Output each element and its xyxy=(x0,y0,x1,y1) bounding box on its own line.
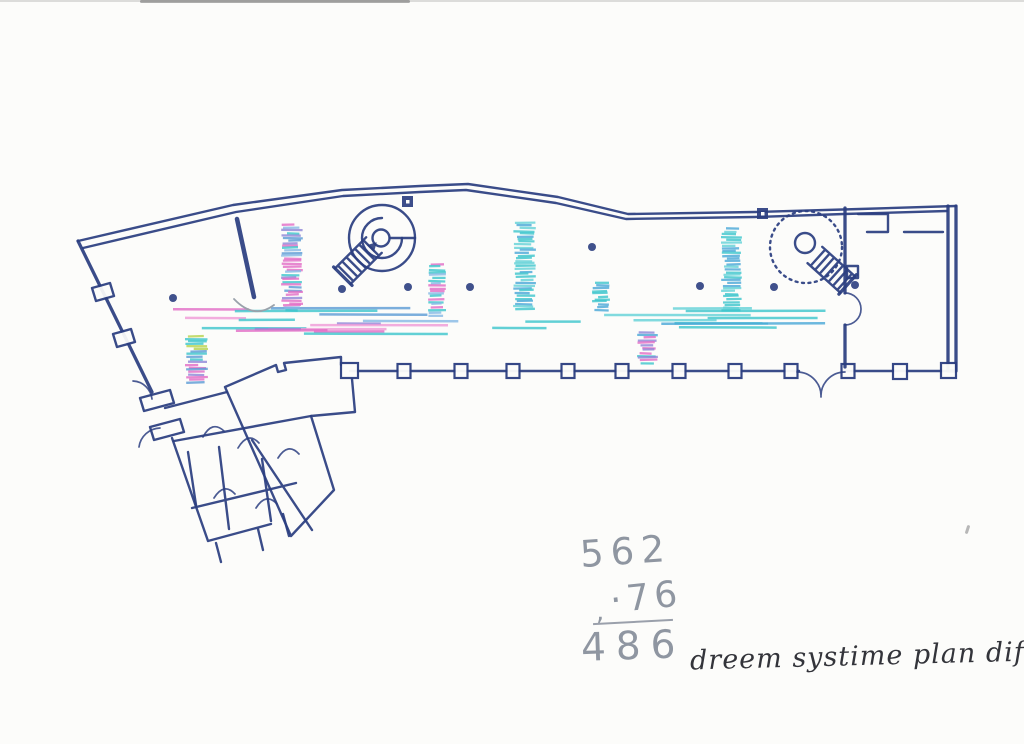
door-swing-arcs xyxy=(203,427,299,508)
lower-left-wing-walls xyxy=(133,357,355,562)
pencil-subtrahend-mark: , xyxy=(596,599,604,625)
stair-wall-markers xyxy=(402,196,768,219)
double-door-swing xyxy=(797,372,845,397)
floor-plan-drawing xyxy=(0,0,1024,744)
door-swing-arc xyxy=(845,293,861,325)
bottom-colonnade-wall xyxy=(341,363,956,397)
pencil-number-minuend: 562 xyxy=(579,530,673,573)
pencil-number-subtrahend: ·76 xyxy=(608,576,684,619)
scanned-floor-plan-page: 562 , ·76 486 dreem systime plan dif, xyxy=(0,0,1024,744)
pencil-number-result: 486 xyxy=(580,625,686,668)
top-right-rooms xyxy=(845,208,943,367)
hall-partition-and-door xyxy=(234,219,274,311)
wing-room-outline xyxy=(225,357,355,536)
round-column-dots xyxy=(169,243,859,302)
spiral-stair-left xyxy=(334,205,415,285)
marker-hatch-bands xyxy=(173,223,826,383)
